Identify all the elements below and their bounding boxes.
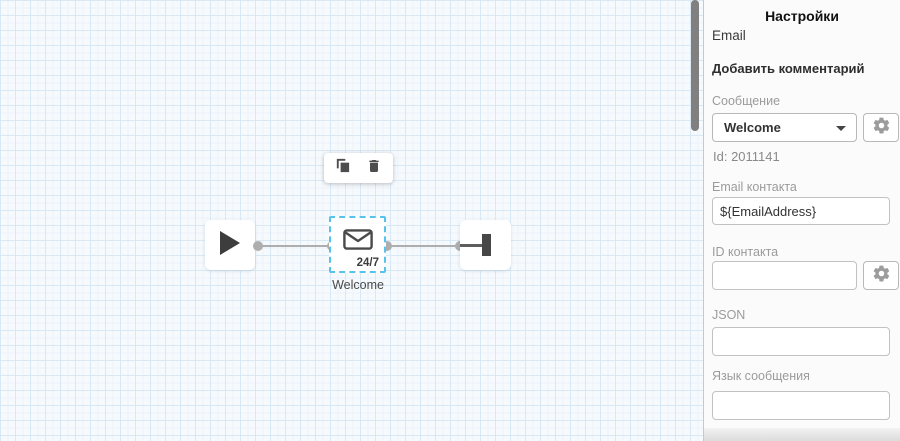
contact-email-input[interactable] xyxy=(712,197,890,225)
message-language-input[interactable] xyxy=(712,391,890,420)
automation-flow-editor: 24/7 Welcome Настройки Email Добавить ко… xyxy=(0,0,900,441)
end-icon-line xyxy=(460,244,484,247)
contact-id-label: ID контакта xyxy=(712,245,778,259)
play-icon xyxy=(220,231,240,260)
gear-icon xyxy=(872,116,891,140)
contact-id-input[interactable] xyxy=(712,261,857,290)
delete-node-button[interactable] xyxy=(361,155,387,181)
message-select-value: Welcome xyxy=(724,120,781,135)
message-settings-button[interactable] xyxy=(863,113,899,142)
copy-icon xyxy=(334,157,351,179)
end-icon-bar xyxy=(482,234,491,256)
node-toolbar xyxy=(324,153,393,183)
envelope-icon xyxy=(343,229,373,255)
contact-email-label: Email контакта xyxy=(712,180,797,194)
start-node-output-port[interactable] xyxy=(253,241,263,251)
settings-panel: Настройки Email Добавить комментарий Соо… xyxy=(703,0,900,441)
edge-start-to-email xyxy=(258,245,332,247)
message-id-text: Id: 2011141 xyxy=(713,149,780,164)
json-input[interactable] xyxy=(712,327,890,356)
edge-email-to-end xyxy=(387,245,461,247)
email-node-selected[interactable]: 24/7 xyxy=(329,216,386,273)
json-label: JSON xyxy=(712,308,745,322)
copy-node-button[interactable] xyxy=(330,155,356,181)
chevron-down-icon xyxy=(836,126,846,131)
flow-canvas[interactable]: 24/7 Welcome xyxy=(0,0,703,441)
vertical-scrollbar-thumb[interactable] xyxy=(691,0,699,131)
end-node[interactable] xyxy=(460,220,511,270)
trash-icon xyxy=(366,158,382,179)
add-comment-link[interactable]: Добавить комментарий xyxy=(712,61,865,76)
node-type-label: Email xyxy=(712,28,746,43)
email-247-badge: 24/7 xyxy=(357,257,379,269)
email-node-caption: Welcome xyxy=(318,278,398,292)
start-node[interactable] xyxy=(205,220,255,270)
panel-title: Настройки xyxy=(704,8,900,24)
message-label: Сообщение xyxy=(712,94,780,108)
message-select[interactable]: Welcome xyxy=(712,113,857,142)
gear-icon xyxy=(872,264,891,288)
contact-id-settings-button[interactable] xyxy=(863,261,899,290)
message-language-label: Язык сообщения xyxy=(712,369,810,383)
panel-bottom-edge xyxy=(704,428,900,441)
